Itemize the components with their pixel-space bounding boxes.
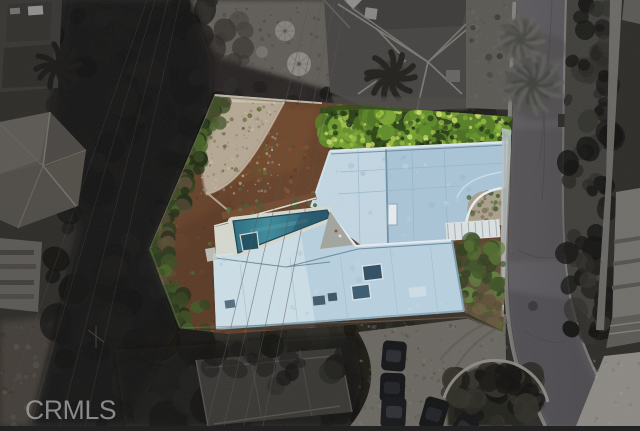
svg-text:CRMLS: CRMLS: [25, 395, 116, 425]
